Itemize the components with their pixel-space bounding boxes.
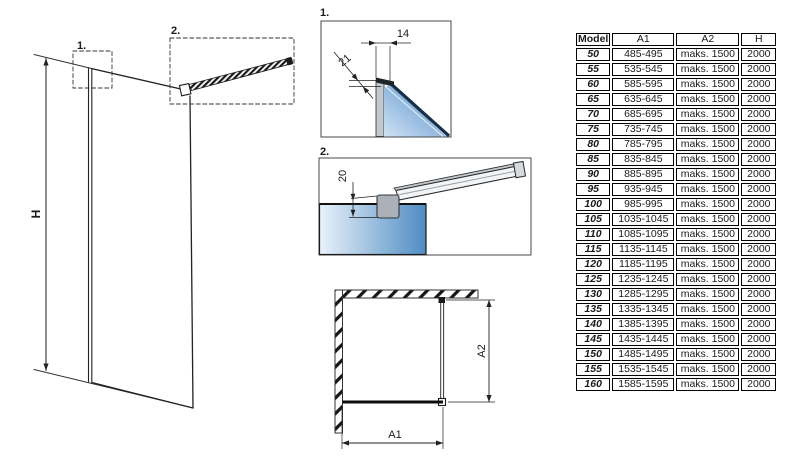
table-header-row: Model A1 A2 H [576,33,776,46]
a1-cell: 1035-1045 [612,213,674,226]
detail1-label: 1. [320,7,329,19]
a2-cell: maks. 1500 [676,108,739,121]
a1-cell: 535-545 [612,63,674,76]
a2-cell: maks. 1500 [676,78,739,91]
model-cell: 55 [576,63,610,76]
h-cell: 2000 [741,198,776,211]
h-cell: 2000 [741,108,776,121]
h-cell: 2000 [741,363,776,376]
table-row: 80 785-795 maks. 1500 2000 [576,138,776,151]
a2-cell: maks. 1500 [676,63,739,76]
h-cell: 2000 [741,258,776,271]
a1-cell: 835-845 [612,153,674,166]
left-wall [335,290,343,433]
a1-cell: 1085-1095 [612,228,674,241]
table-row: 120 1185-1195 maks. 1500 2000 [576,258,776,271]
h-cell: 2000 [741,348,776,361]
model-cell: 120 [576,258,610,271]
dimA2-label: A2 [476,344,488,357]
a2-cell: maks. 1500 [676,378,739,391]
a2-cell: maks. 1500 [676,288,739,301]
detail1-view: 1. 14 21 [320,7,451,137]
h-cell: 2000 [741,378,776,391]
model-cell: 150 [576,348,610,361]
a2-cell: maks. 1500 [676,138,739,151]
h-cell: 2000 [741,63,776,76]
h-cell: 2000 [741,213,776,226]
column-header-a1: A1 [612,33,674,46]
wall-profile-section [376,80,384,137]
a1-cell: 585-595 [612,78,674,91]
glass-bottom-edge [92,383,193,409]
a1-cell: 1235-1245 [612,273,674,286]
model-cell: 155 [576,363,610,376]
table-row: 155 1535-1545 maks. 1500 2000 [576,363,776,376]
top-extension-line [34,55,92,69]
h-cell: 2000 [741,183,776,196]
detail1-reference-label: 1. [77,40,86,52]
h-cell: 2000 [741,93,776,106]
model-cell: 80 [576,138,610,151]
dimA1-label: A1 [388,429,401,441]
table-row: 95 935-945 maks. 1500 2000 [576,183,776,196]
glass-right-edge [190,96,193,408]
detail1-reference-box [73,51,112,88]
detail2-label: 2. [320,146,329,158]
a2-cell: maks. 1500 [676,198,739,211]
a1-cell: 485-495 [612,48,674,61]
a2-cell: maks. 1500 [676,168,739,181]
a2-cell: maks. 1500 [676,303,739,316]
dim14-label: 14 [397,28,409,40]
h-cell: 2000 [741,228,776,241]
table-row: 65 635-645 maks. 1500 2000 [576,93,776,106]
table-row: 60 585-595 maks. 1500 2000 [576,78,776,91]
h-cell: 2000 [741,318,776,331]
glass-bracket [179,84,190,96]
table-row: 140 1385-1395 maks. 1500 2000 [576,318,776,331]
detail2-reference-label: 2. [171,25,180,37]
a1-cell: 635-645 [612,93,674,106]
walk-in-shower-spec-sheet: H 1. 2. 1. 14 [0,0,800,457]
height-dimension-label: H [29,210,43,219]
table-row: 55 535-545 maks. 1500 2000 [576,63,776,76]
h-cell: 2000 [741,288,776,301]
a2-cell: maks. 1500 [676,153,739,166]
bar-clamp [377,195,399,218]
model-cell: 145 [576,333,610,346]
model-cell: 75 [576,123,610,136]
a2-cell: maks. 1500 [676,348,739,361]
a1-cell: 1385-1395 [612,318,674,331]
glass-panel [320,204,427,255]
h-cell: 2000 [741,273,776,286]
table-row: 135 1335-1345 maks. 1500 2000 [576,303,776,316]
a1-cell: 1435-1445 [612,333,674,346]
main-isometric-view: H 1. 2. [29,25,294,408]
model-cell: 115 [576,243,610,256]
a2-cell: maks. 1500 [676,273,739,286]
bar-wall-anchor [439,297,446,303]
plan-view: A2 A1 [335,290,495,449]
a2-cell: maks. 1500 [676,243,739,256]
table-row: 160 1585-1595 maks. 1500 2000 [576,378,776,391]
a1-cell: 935-945 [612,183,674,196]
dim20-label: 20 [337,170,349,182]
a1-cell: 985-995 [612,198,674,211]
a2-cell: maks. 1500 [676,318,739,331]
model-cell: 85 [576,153,610,166]
model-cell: 110 [576,228,610,241]
table-row: 130 1285-1295 maks. 1500 2000 [576,288,776,301]
h-cell: 2000 [741,138,776,151]
h-cell: 2000 [741,333,776,346]
top-wall [335,290,478,298]
table-row: 145 1435-1445 maks. 1500 2000 [576,333,776,346]
a1-cell: 685-695 [612,108,674,121]
h-cell: 2000 [741,153,776,166]
a2-cell: maks. 1500 [676,363,739,376]
h-cell: 2000 [741,48,776,61]
model-cell: 130 [576,288,610,301]
table-row: 105 1035-1045 maks. 1500 2000 [576,213,776,226]
a2-cell: maks. 1500 [676,123,739,136]
a2-cell: maks. 1500 [676,93,739,106]
table-row: 110 1085-1095 maks. 1500 2000 [576,228,776,241]
column-header-h: H [741,33,776,46]
model-cell: 105 [576,213,610,226]
model-cell: 95 [576,183,610,196]
table-row: 100 985-995 maks. 1500 2000 [576,198,776,211]
a1-cell: 735-745 [612,123,674,136]
model-cell: 70 [576,108,610,121]
a2-cell: maks. 1500 [676,183,739,196]
table-row: 115 1135-1145 maks. 1500 2000 [576,243,776,256]
a2-cell: maks. 1500 [676,258,739,271]
a1-cell: 1485-1495 [612,348,674,361]
size-table: Model A1 A2 H 50 485-495 maks. 1500 2000 [574,31,778,393]
support-bar-end-cap [514,162,526,178]
model-cell: 100 [576,198,610,211]
h-cell: 2000 [741,78,776,91]
table-row: 85 835-845 maks. 1500 2000 [576,153,776,166]
a1-cell: 1535-1545 [612,363,674,376]
a2-cell: maks. 1500 [676,48,739,61]
table-row: 70 685-695 maks. 1500 2000 [576,108,776,121]
table-row: 50 485-495 maks. 1500 2000 [576,48,776,61]
table-row: 125 1235-1245 maks. 1500 2000 [576,273,776,286]
h-cell: 2000 [741,168,776,181]
model-cell: 125 [576,273,610,286]
model-cell: 60 [576,78,610,91]
model-cell: 140 [576,318,610,331]
h-cell: 2000 [741,123,776,136]
support-bar [189,59,291,91]
a1-cell: 885-895 [612,168,674,181]
a2-cell: maks. 1500 [676,228,739,241]
model-cell: 50 [576,48,610,61]
model-cell: 90 [576,168,610,181]
column-header-model: Model [576,33,610,46]
a1-cell: 1135-1145 [612,243,674,256]
glass-top-edge [92,69,183,90]
a1-cell: 1185-1195 [612,258,674,271]
a2-cell: maks. 1500 [676,213,739,226]
column-header-a2: A2 [676,33,739,46]
model-cell: 65 [576,93,610,106]
detail2-view: 2. 20 [319,146,531,255]
a1-cell: 1585-1595 [612,378,674,391]
model-cell: 135 [576,303,610,316]
h-cell: 2000 [741,243,776,256]
a2-cell: maks. 1500 [676,333,739,346]
a1-cell: 785-795 [612,138,674,151]
table-row: 90 885-895 maks. 1500 2000 [576,168,776,181]
a1-cell: 1285-1295 [612,288,674,301]
table-row: 150 1485-1495 maks. 1500 2000 [576,348,776,361]
a1-cell: 1335-1345 [612,303,674,316]
table-row: 75 735-745 maks. 1500 2000 [576,123,776,136]
model-cell: 160 [576,378,610,391]
h-cell: 2000 [741,303,776,316]
